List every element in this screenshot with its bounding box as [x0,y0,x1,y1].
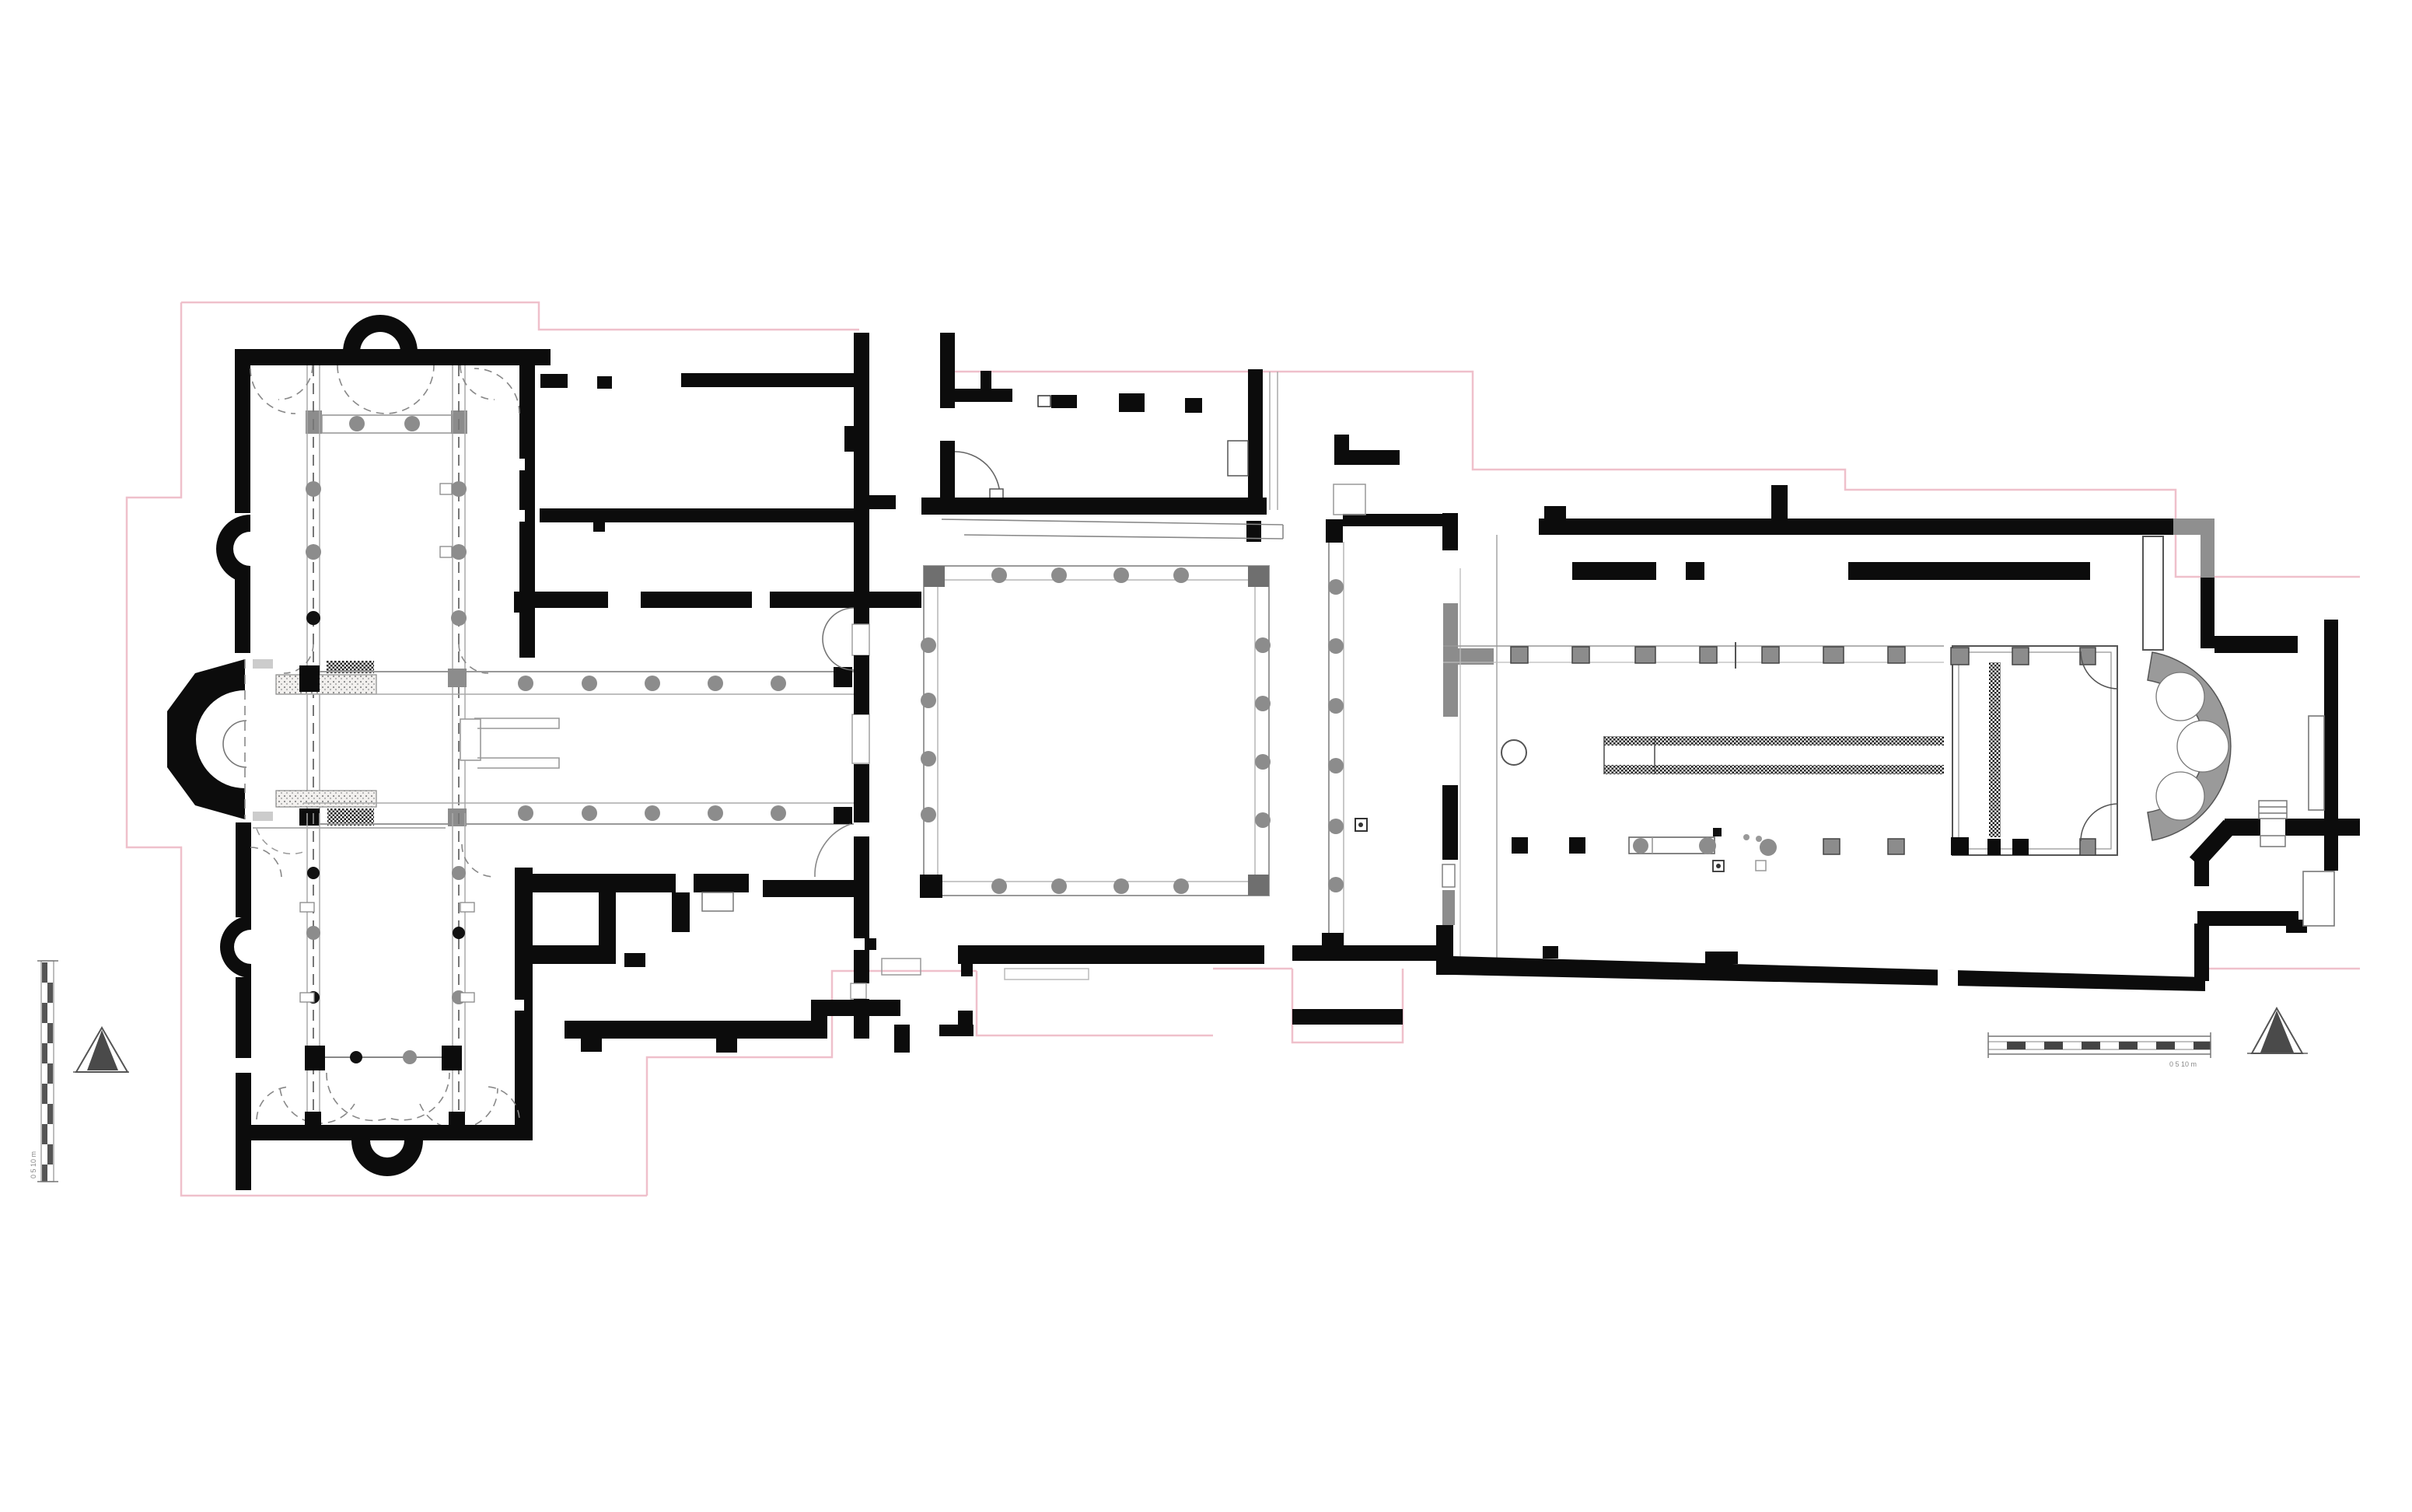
svg-text:0 5 10 m: 0 5 10 m [2169,1060,2197,1068]
svg-text:0 5 10 m: 0 5 10 m [30,1151,37,1179]
